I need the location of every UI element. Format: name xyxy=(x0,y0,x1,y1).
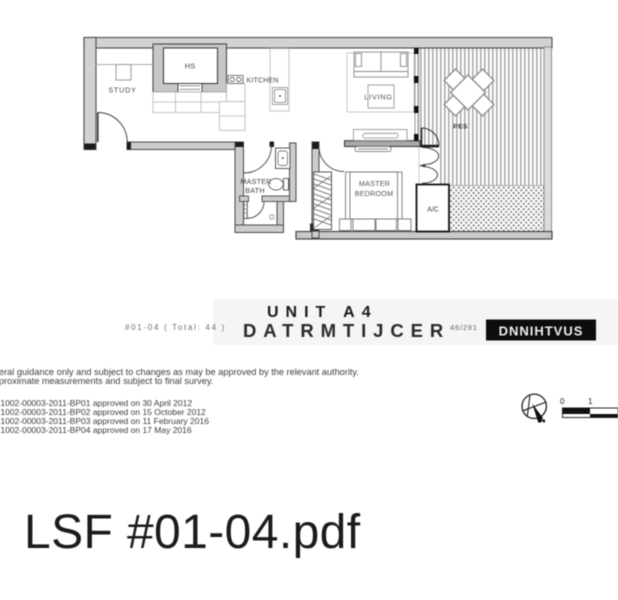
svg-text:DATRMTIJCER: DATRMTIJCER xyxy=(243,320,450,341)
svg-text:proximate measurements and sub: proximate measurements and subject to fi… xyxy=(0,376,213,386)
svg-text:HS: HS xyxy=(185,62,195,71)
svg-text:LSF #01-04.pdf: LSF #01-04.pdf xyxy=(24,506,361,559)
svg-text:LIVING: LIVING xyxy=(364,93,392,102)
svg-text:.1002-00003-2011-BP04 approved: .1002-00003-2011-BP04 approved on 17 May… xyxy=(0,425,192,435)
svg-text:PES: PES xyxy=(453,123,468,130)
svg-text:DNNIHTVUS: DNNIHTVUS xyxy=(499,324,584,339)
svg-text:MASTER: MASTER xyxy=(359,179,390,188)
svg-text:MASTER: MASTER xyxy=(240,177,271,186)
svg-text:1: 1 xyxy=(588,397,593,406)
svg-text:BEDROOM: BEDROOM xyxy=(355,189,394,198)
svg-text:UNIT A4: UNIT A4 xyxy=(267,304,378,321)
svg-text:#01-04 ( Total: 44 ): #01-04 ( Total: 44 ) xyxy=(125,323,226,332)
svg-text:A/C: A/C xyxy=(427,207,439,214)
svg-text:BATH: BATH xyxy=(245,186,264,195)
svg-text:STUDY: STUDY xyxy=(108,86,136,95)
svg-text:46/291: 46/291 xyxy=(450,323,478,332)
svg-text:0: 0 xyxy=(560,397,565,406)
svg-text:KITCHEN: KITCHEN xyxy=(247,78,279,85)
